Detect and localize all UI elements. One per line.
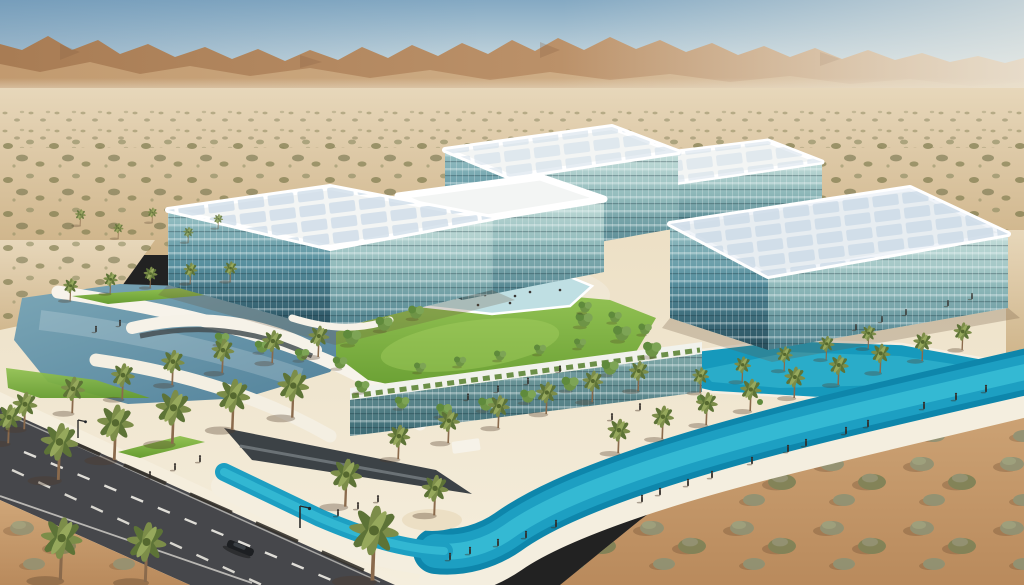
aerial-campus-render: Aerial rendering of a modern glass offic… (0, 0, 1024, 585)
canal-island (402, 509, 462, 531)
